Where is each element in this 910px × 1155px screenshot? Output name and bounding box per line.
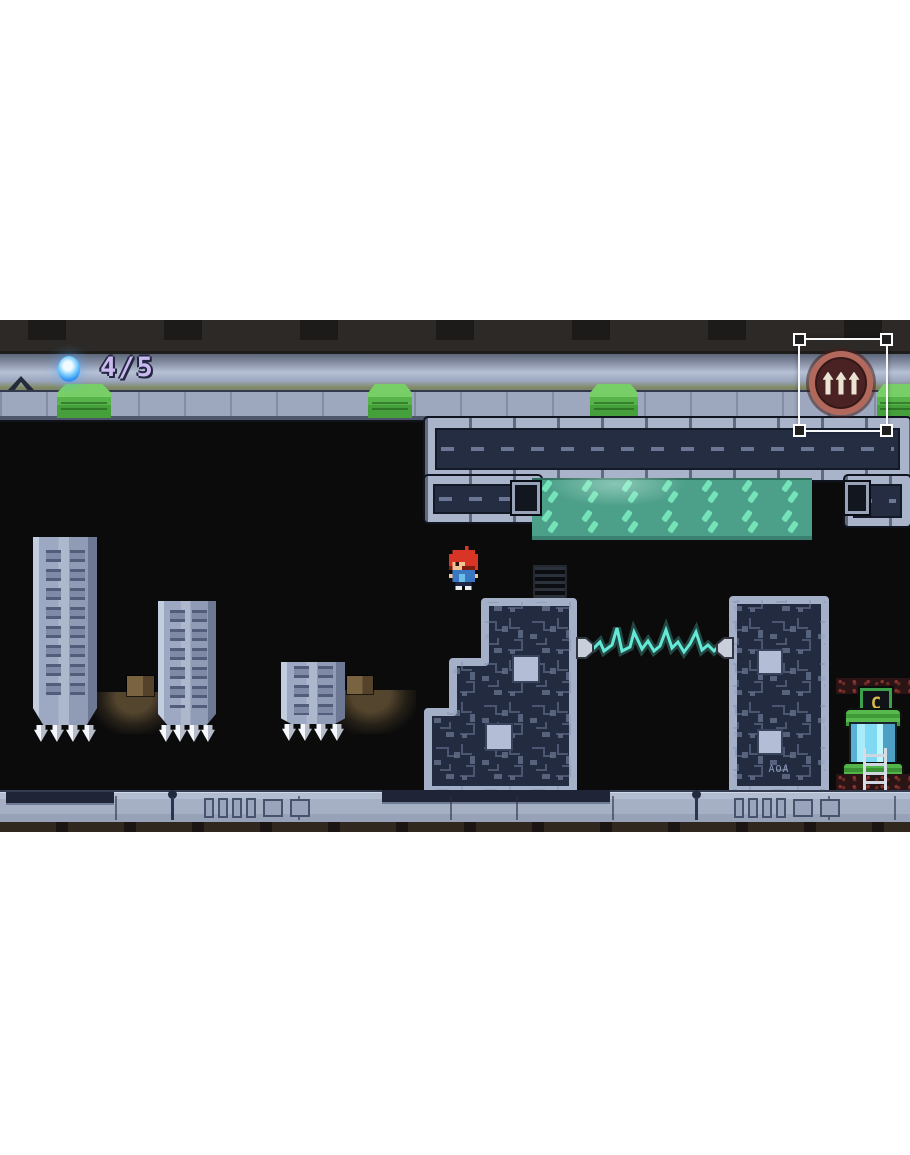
indicator-slit xyxy=(246,798,256,818)
up-arrow-icon xyxy=(849,372,860,395)
ladder xyxy=(863,748,887,790)
floor-seam xyxy=(612,796,614,820)
selection-handle[interactable] xyxy=(880,424,893,437)
pillar-display-code: AOA xyxy=(768,764,789,775)
floor-inset-panel xyxy=(382,790,610,802)
letterbox-bottom xyxy=(0,832,910,1155)
floor-seam xyxy=(894,796,896,820)
jump-control-button[interactable] xyxy=(809,351,873,415)
indicator-slit xyxy=(734,798,744,818)
floor-indicator-lights xyxy=(734,798,840,818)
floor-seam xyxy=(695,797,698,820)
beam-emitter-icon xyxy=(717,638,733,658)
indicator-slit xyxy=(762,798,772,818)
indicator-slit xyxy=(204,798,214,818)
energy-orb-icon xyxy=(58,356,80,382)
floor-seam xyxy=(450,796,452,820)
floor xyxy=(0,790,910,822)
level-structures: AOA xyxy=(0,320,910,832)
floor-seam xyxy=(115,796,117,820)
indicator-square xyxy=(820,799,840,817)
letterbox-top xyxy=(0,0,910,320)
indicator-slit xyxy=(748,798,758,818)
floor-inset-panel xyxy=(6,792,114,803)
floor-seam xyxy=(171,797,174,820)
circuit-pillar-stepped xyxy=(428,602,573,790)
electric-beam xyxy=(577,628,733,658)
subfloor-shadow xyxy=(0,822,910,832)
up-arrow-icon xyxy=(823,372,834,395)
checkpoint-capsule: C xyxy=(836,672,910,792)
selection-handle[interactable] xyxy=(880,333,893,346)
indicator-square xyxy=(290,799,310,817)
player-character xyxy=(449,546,478,590)
selection-handle[interactable] xyxy=(793,333,806,346)
beam-emitter-icon xyxy=(577,638,593,658)
indicator-square xyxy=(263,799,283,817)
indicator-slit xyxy=(218,798,228,818)
selection-handle[interactable] xyxy=(793,424,806,437)
screenshot-root: AOA xyxy=(0,0,910,1155)
circuit-pillar-right: AOA xyxy=(733,600,825,790)
floor-indicator-lights xyxy=(204,798,310,818)
orb-counter: 4/5 xyxy=(100,352,155,383)
indicator-slit xyxy=(776,798,786,818)
indicator-square xyxy=(793,799,813,817)
floor-seam xyxy=(516,796,518,820)
indicator-slit xyxy=(232,798,242,818)
game-viewport: AOA xyxy=(0,320,910,832)
up-arrow-icon xyxy=(836,372,847,395)
